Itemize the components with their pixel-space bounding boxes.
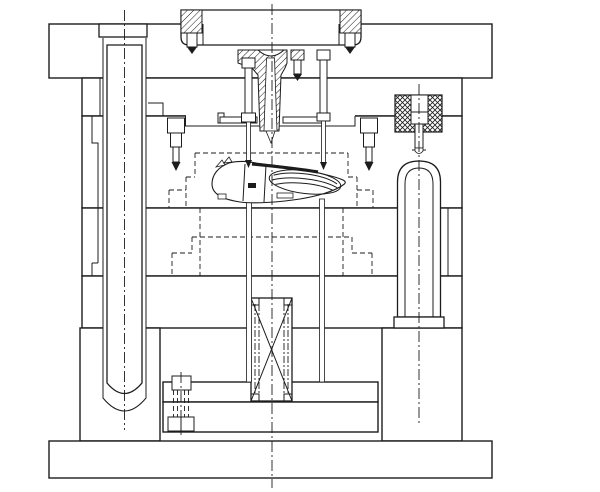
spring bbox=[251, 298, 292, 401]
sprue-channel bbox=[264, 58, 277, 131]
mold-assembly-drawing bbox=[0, 0, 600, 492]
pillar-head bbox=[99, 24, 147, 37]
guide-pillar-left bbox=[99, 24, 147, 411]
spacer-rail-right bbox=[382, 328, 462, 441]
drawing-canvas bbox=[0, 0, 600, 492]
bottom-clamp-plate bbox=[49, 441, 492, 478]
ejector-base-plate bbox=[163, 402, 378, 432]
